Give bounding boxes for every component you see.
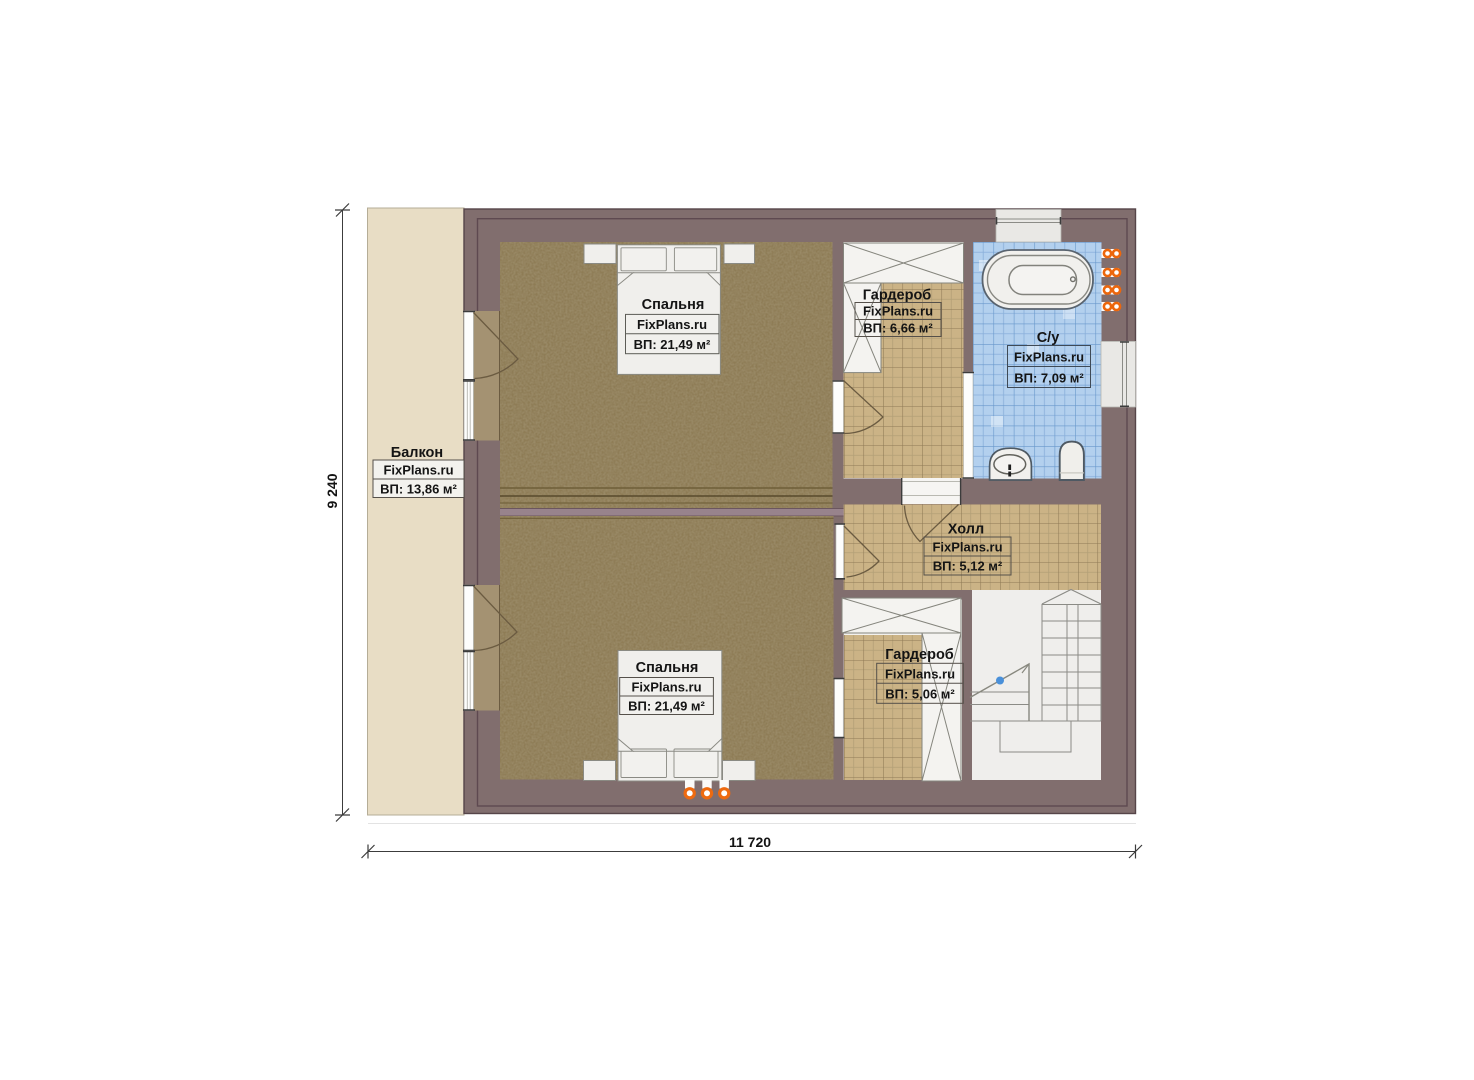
svg-text:ВП: 21,49 м²: ВП: 21,49 м² — [634, 337, 711, 352]
svg-text:ВП: 13,86 м²: ВП: 13,86 м² — [380, 482, 457, 497]
svg-text:Гардероб: Гардероб — [863, 288, 932, 304]
svg-text:FixPlans.ru: FixPlans.ru — [932, 540, 1002, 555]
svg-text:Холл: Холл — [948, 522, 984, 538]
svg-text:FixPlans.ru: FixPlans.ru — [1014, 350, 1084, 365]
svg-text:11 720: 11 720 — [729, 834, 771, 850]
svg-text:ВП: 21,49 м²: ВП: 21,49 м² — [628, 699, 705, 714]
svg-text:С/у: С/у — [1037, 330, 1060, 346]
svg-text:Спальня: Спальня — [636, 660, 699, 676]
svg-text:FixPlans.ru: FixPlans.ru — [631, 680, 701, 695]
svg-text:ВП: 7,09 м²: ВП: 7,09 м² — [1014, 371, 1084, 386]
svg-text:FixPlans.ru: FixPlans.ru — [863, 304, 933, 319]
svg-text:ВП: 5,12 м²: ВП: 5,12 м² — [933, 559, 1003, 574]
svg-text:Балкон: Балкон — [391, 445, 443, 461]
svg-text:9 240: 9 240 — [324, 473, 340, 508]
svg-text:Спальня: Спальня — [642, 297, 705, 313]
svg-text:FixPlans.ru: FixPlans.ru — [383, 463, 453, 478]
svg-text:FixPlans.ru: FixPlans.ru — [885, 667, 955, 682]
svg-text:ВП: 5,06 м²: ВП: 5,06 м² — [885, 687, 955, 702]
svg-text:FixPlans.ru: FixPlans.ru — [637, 317, 707, 332]
svg-text:Гардероб: Гардероб — [885, 647, 954, 663]
svg-text:ВП: 6,66 м²: ВП: 6,66 м² — [863, 321, 933, 336]
